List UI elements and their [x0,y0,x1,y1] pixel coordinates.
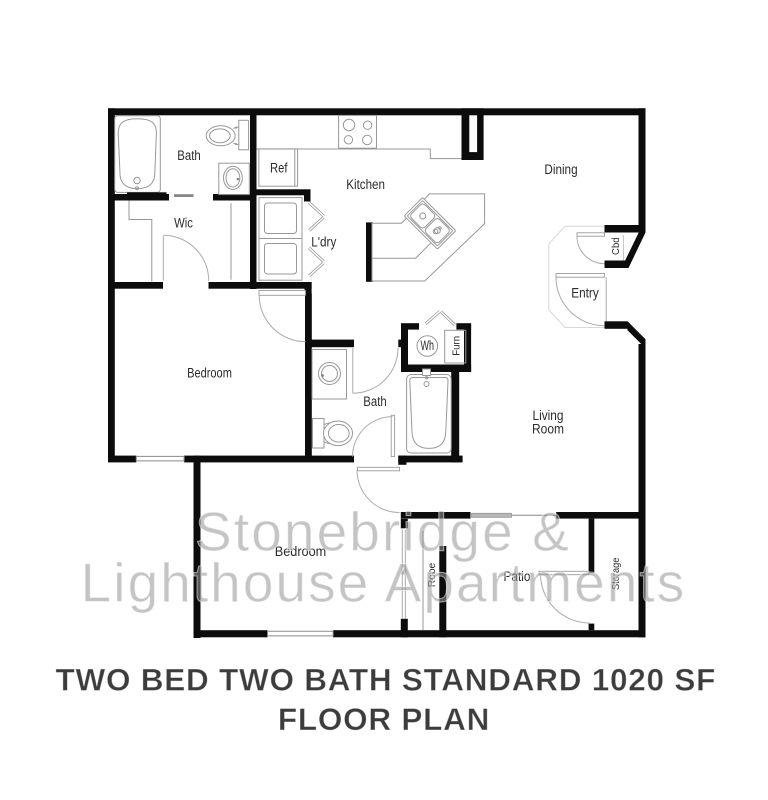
svg-text:Furn: Furn [450,336,462,356]
svg-text:TWO BED TWO BATH STANDARD 1020: TWO BED TWO BATH STANDARD 1020 SF [55,661,716,697]
svg-text:Bath: Bath [177,148,201,163]
svg-text:Room: Room [532,421,564,436]
svg-text:Bath: Bath [363,394,386,409]
svg-text:L'dry: L'dry [311,234,336,249]
svg-text:Wh: Wh [421,338,435,353]
svg-text:Dining: Dining [544,162,577,177]
svg-text:FLOOR PLAN: FLOOR PLAN [278,701,490,737]
svg-text:Wic: Wic [174,216,193,231]
svg-text:Kitchen: Kitchen [346,177,385,192]
svg-text:Ref: Ref [270,161,288,176]
svg-text:Entry: Entry [571,285,599,300]
svg-text:Bedroom: Bedroom [187,366,232,381]
svg-text:Lighthouse Apartments: Lighthouse Apartments [81,552,687,614]
svg-text:Cbd: Cbd [610,237,622,255]
